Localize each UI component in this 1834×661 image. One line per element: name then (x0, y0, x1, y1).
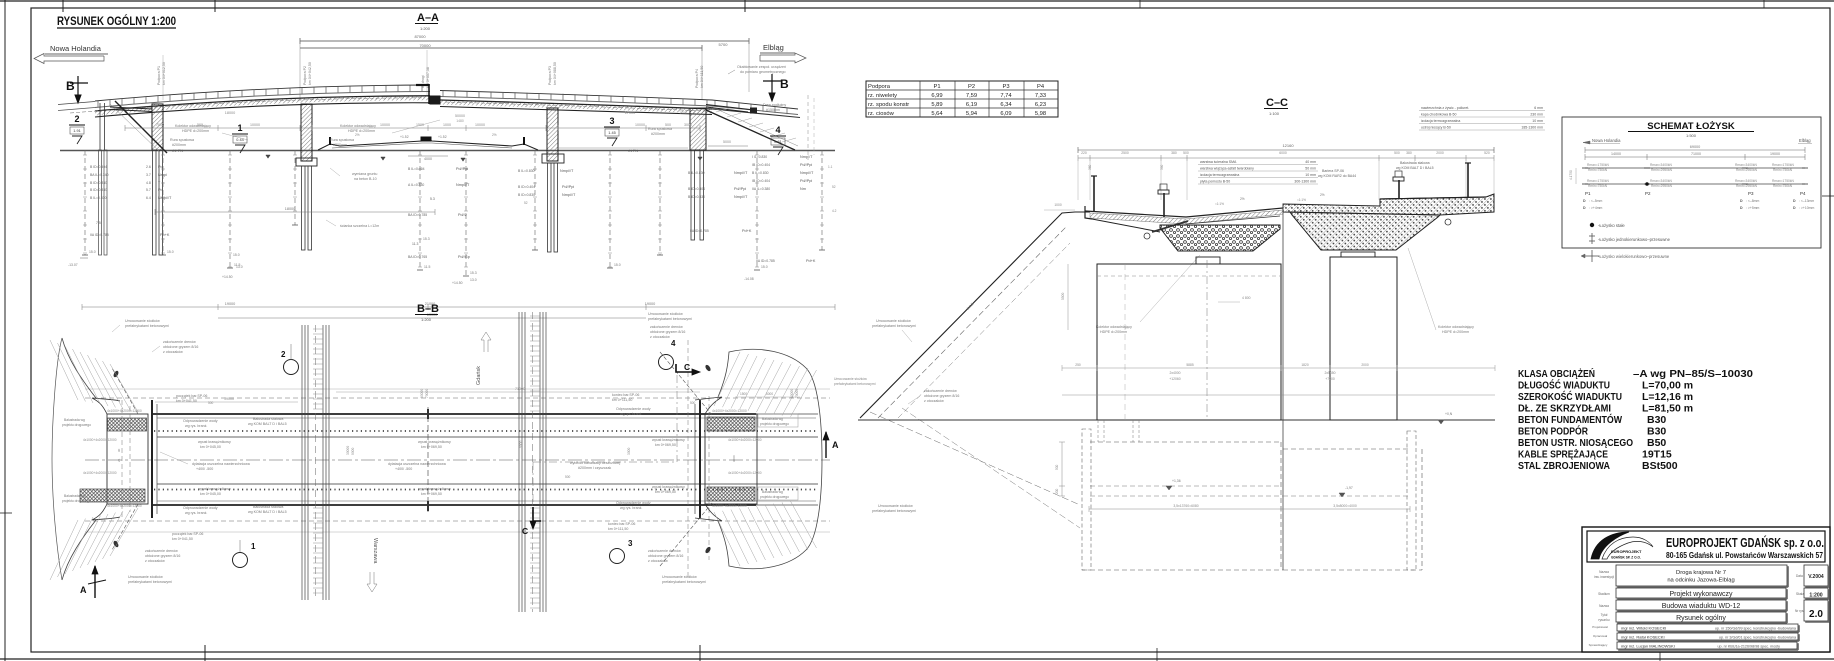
svg-text:mgr inż. Witold KOSECKI: mgr inż. Witold KOSECKI (1621, 626, 1666, 631)
svg-text:B30: B30 (1647, 426, 1666, 438)
svg-text:BA ID=0.765: BA ID=0.765 (408, 255, 427, 259)
svg-text:4.1750: 4.1750 (1569, 170, 1573, 180)
svg-text:80-165 Gdańsk ul. Powstańców W: 80-165 Gdańsk ul. Powstańców Warszawskic… (1666, 550, 1823, 560)
svg-text:500: 500 (1055, 464, 1059, 470)
svg-text:18000: 18000 (225, 111, 236, 115)
svg-text:Odprowadzenie wody: Odprowadzenie wody (616, 407, 651, 411)
svg-text:L=70,00 m: L=70,00 m (1642, 380, 1693, 392)
svg-text:km 04+088,50: km 04+088,50 (553, 62, 557, 85)
svg-text:Podpora: Podpora (868, 84, 891, 90)
svg-text:Rura spustowa: Rura spustowa (648, 127, 672, 131)
svg-text:2%: 2% (1320, 193, 1325, 197)
svg-text:wpust krawężnikowy: wpust krawężnikowy (198, 487, 231, 491)
svg-text:prefabrykatami betonowymi: prefabrykatami betonowymi (648, 317, 692, 321)
svg-text:Podpora P4: Podpora P4 (695, 69, 699, 88)
svg-text:250: 250 (1075, 363, 1081, 367)
svg-text:wg KOM RAR2 do BA44: wg KOM RAR2 do BA44 (1318, 174, 1356, 178)
svg-text:B30: B30 (1647, 414, 1666, 426)
svg-text:Pó+K: Pó+K (160, 233, 170, 237)
svg-text:Nmpi//T: Nmpi//T (158, 196, 172, 200)
svg-text:Pd+K: Pd+K (742, 229, 752, 233)
svg-text:Pd//Ppi: Pd//Ppi (800, 179, 812, 183)
svg-text:3.7: 3.7 (146, 173, 151, 177)
svg-text:#200mm: #200mm (651, 132, 665, 136)
svg-text:Droga krajowa Nr 7: Droga krajowa Nr 7 (1676, 570, 1726, 576)
svg-text:1500: 1500 (416, 123, 424, 127)
svg-text:Kolektor odwadniający: Kolektor odwadniający (1096, 325, 1132, 329)
svg-text:up. nr 3/Gd/01 spec. konst: up. nr 3/Gd/01 spec. konstrukcyjno -budo… (1719, 636, 1797, 640)
svg-text:Rmin=2950kN: Rmin=2950kN (1651, 184, 1673, 188)
svg-text:B ID=0.830: B ID=0.830 (688, 195, 705, 199)
svg-text:2x4000: 2x4000 (1169, 371, 1180, 375)
svg-text:km 0+045,00: km 0+045,00 (200, 445, 221, 449)
svg-text:Budowa wiaduktu WD-12: Budowa wiaduktu WD-12 (1662, 603, 1741, 610)
svg-text:km 0+069,50: km 0+069,50 (655, 443, 676, 447)
svg-text:500: 500 (1394, 151, 1400, 155)
svg-text:185-1300 mm: 185-1300 mm (1521, 126, 1543, 130)
svg-text:Rmin=750kN: Rmin=750kN (1773, 168, 1793, 172)
svg-text:10000: 10000 (250, 123, 260, 127)
svg-text:70000: 70000 (425, 389, 429, 398)
svg-text:BETON FUNDAMENTÓW: BETON FUNDAMENTÓW (1518, 413, 1622, 426)
svg-text:prefabrykatami betonowymi: prefabrykatami betonowymi (872, 324, 916, 328)
svg-text:5500: 5500 (1061, 292, 1065, 300)
svg-text:Rysunek ogólny: Rysunek ogólny (1676, 615, 1726, 622)
svg-text:D: D (1793, 206, 1796, 210)
svg-text:D: D (1740, 206, 1743, 210)
svg-text:Nowa Holandia: Nowa Holandia (50, 44, 102, 53)
svg-text:EUROPROJEKT: EUROPROJEKT (1611, 549, 1642, 554)
svg-text:Pd: Pd (158, 165, 163, 169)
svg-text:z otoczaków: z otoczaków (163, 350, 183, 354)
svg-text:-14.08: -14.08 (744, 277, 754, 281)
svg-text:4 800: 4 800 (1242, 296, 1251, 300)
svg-text:7,33: 7,33 (1035, 93, 1046, 99)
svg-text:wg KOM BALT D i BAL5: wg KOM BALT D i BAL5 (248, 422, 287, 426)
svg-text:+400/ -500: +400/ -500 (395, 467, 412, 471)
svg-text:koniec bar.SP-06: koniec bar.SP-06 (608, 522, 635, 526)
svg-text:obłożone gryzem 8/16: obłożone gryzem 8/16 (648, 554, 683, 558)
svg-text:71000: 71000 (515, 387, 525, 391)
svg-text:70000: 70000 (419, 43, 431, 48)
svg-text:5,89: 5,89 (931, 102, 942, 108)
svg-text:4x1000+4x2000=12000: 4x1000+4x2000=12000 (712, 409, 747, 413)
svg-text:2x5650: 2x5650 (1324, 371, 1335, 375)
svg-text:Nazwa: Nazwa (1599, 604, 1609, 608)
svg-text:25: 25 (117, 458, 121, 462)
svg-text:z otoczaków: z otoczaków (145, 559, 165, 563)
svg-text:1:500: 1:500 (1686, 133, 1697, 138)
svg-text:km 0+041,50: km 0+041,50 (172, 537, 193, 541)
svg-text:km 04+111,50: km 04+111,50 (700, 66, 704, 88)
svg-text:1000: 1000 (1054, 203, 1062, 207)
svg-text:15.0: 15.0 (761, 265, 768, 269)
svg-text:D: D (1740, 199, 1743, 203)
svg-text:Skala: Skala (1796, 592, 1804, 596)
svg-text:KLASA OBCIĄŻEŃ: KLASA OBCIĄŻEŃ (1518, 367, 1595, 380)
svg-text:4.8: 4.8 (146, 181, 151, 185)
svg-text:6,19: 6,19 (966, 102, 977, 108)
svg-text:Kolektor odwadniający: Kolektor odwadniający (175, 124, 211, 128)
svg-text:BSt500: BSt500 (1642, 460, 1678, 472)
svg-text:Pd//2: Pd//2 (458, 213, 467, 217)
svg-text:do pomiaru geometrycznego: do pomiaru geometrycznego (740, 70, 786, 74)
svg-text:4x1000+4x2000=12000: 4x1000+4x2000=12000 (83, 438, 117, 442)
svg-text:B IL=0.830: B IL=0.830 (752, 171, 769, 175)
svg-text:Odprowadzenie wody: Odprowadzenie wody (616, 501, 651, 505)
svg-text:obłożone gryzem 8/16: obłożone gryzem 8/16 (163, 345, 198, 349)
svg-text:Nr rys.: Nr rys. (1795, 609, 1804, 613)
svg-text:I IL=0.830: I IL=0.830 (752, 155, 767, 159)
svg-text:Rmin=2950kN: Rmin=2950kN (1736, 168, 1758, 172)
svg-text:: >+4mm: : >+4mm (1589, 206, 1603, 210)
svg-text:V.2004: V.2004 (1808, 574, 1824, 580)
svg-text:ścianka szczelna L=12m: ścianka szczelna L=12m (340, 224, 379, 228)
svg-text:obłożone gryzem 8/16: obłożone gryzem 8/16 (924, 394, 959, 398)
svg-text:B50: B50 (1647, 437, 1666, 449)
svg-text:P1: P1 (1585, 191, 1591, 196)
svg-text:projektu drogowego: projektu drogowego (62, 499, 91, 503)
svg-text:IB ID=0.404: IB ID=0.404 (752, 163, 770, 167)
svg-text:15.0: 15.0 (233, 253, 240, 257)
svg-text:230 mm: 230 mm (1530, 113, 1543, 117)
svg-text:-13.07: -13.07 (68, 263, 78, 267)
svg-text:Odprowadzenie wody: Odprowadzenie wody (183, 419, 218, 423)
svg-text:–A wg PN–85/S–10030: –A wg PN–85/S–10030 (1633, 368, 1753, 380)
svg-text:B ID=0.830: B ID=0.830 (90, 181, 107, 185)
svg-text:A IL=0.830: A IL=0.830 (408, 183, 424, 187)
svg-text:wpust krawężnikowy: wpust krawężnikowy (198, 440, 231, 444)
svg-text:Nowa Holandia: Nowa Holandia (1592, 138, 1621, 143)
svg-text:Odprowadzenie wody: Odprowadzenie wody (183, 506, 218, 510)
svg-text:#200mm: #200mm (172, 143, 186, 147)
svg-text:2.6: 2.6 (146, 165, 151, 169)
svg-text:z otoczaków: z otoczaków (924, 399, 944, 403)
svg-text:Rmin=750kN: Rmin=750kN (1773, 184, 1793, 188)
svg-text:Nmpi: Nmpi (158, 173, 167, 177)
svg-text:69000: 69000 (1690, 145, 1701, 149)
svg-text:1480: 1480 (456, 119, 464, 123)
svg-text:wpust krawężnikowy: wpust krawężnikowy (418, 440, 451, 444)
svg-text:DŁ. ZE SKRZYDŁAMI: DŁ. ZE SKRZYDŁAMI (1518, 403, 1611, 415)
svg-text:6000: 6000 (766, 392, 773, 396)
svg-text:B IL=0.404: B IL=0.404 (408, 167, 425, 171)
svg-text:B IL=0.830: B IL=0.830 (688, 171, 705, 175)
svg-text:71000: 71000 (1691, 152, 1701, 156)
svg-text:15.3: 15.3 (423, 237, 430, 241)
svg-text:-1,97: -1,97 (1345, 486, 1353, 490)
svg-text:4x1000+4x2000=12000: 4x1000+4x2000=12000 (728, 438, 762, 442)
svg-text:P2: P2 (1645, 191, 1651, 196)
svg-text:zakończenie drenów: zakończenie drenów (145, 549, 178, 553)
svg-text:Rmax=3400kN: Rmax=3400kN (1650, 179, 1673, 183)
svg-text:prefabrykatami betonowymi: prefabrykatami betonowymi (872, 509, 916, 513)
svg-text:3,5x8000=4000: 3,5x8000=4000 (1333, 504, 1357, 508)
svg-text:12160: 12160 (1282, 143, 1294, 148)
svg-text:7000: 7000 (156, 123, 164, 127)
svg-text:Elbląg: Elbląg (1799, 138, 1811, 143)
svg-text:Rmin=750kN: Rmin=750kN (1588, 168, 1608, 172)
svg-text:B ID=0.404: B ID=0.404 (688, 187, 705, 191)
svg-text:1: 1 (237, 123, 242, 133)
svg-text:projektu drogowego: projektu drogowego (62, 423, 91, 427)
svg-text:70000: 70000 (795, 389, 799, 398)
svg-text:inw. inwestycji: inw. inwestycji (1594, 575, 1614, 579)
svg-text:50000: 50000 (455, 114, 465, 118)
svg-text:11.5: 11.5 (424, 265, 430, 269)
svg-text:15.3: 15.3 (470, 271, 477, 275)
svg-text:200: 200 (1055, 488, 1059, 494)
svg-text:z otoczaków: z otoczaków (648, 559, 668, 563)
svg-text:#150mm: #150mm (766, 108, 780, 112)
svg-text:km 0+045,00: km 0+045,00 (200, 492, 221, 496)
svg-text:2.0: 2.0 (1809, 609, 1823, 620)
svg-text:220: 220 (1081, 151, 1087, 155)
svg-text:: <–8mm: : <–8mm (1746, 199, 1759, 203)
svg-text:up. nr 150/Gd/99 spec. konstr: up. nr 150/Gd/99 spec. konstrukcyjno -bu… (1715, 627, 1797, 631)
svg-text:Nmp//T: Nmp//T (800, 155, 813, 159)
svg-text:prefabrykatami betonowymi: prefabrykatami betonowymi (128, 580, 172, 584)
svg-text:500: 500 (1183, 151, 1189, 155)
svg-text:1500: 1500 (740, 392, 747, 396)
svg-text:Umocowanie stożków: Umocowanie stożków (876, 319, 911, 323)
svg-text:up. nr KBU1a-2126/98/98 spec.: up. nr KBU1a-2126/98/98 spec. mosty (1717, 645, 1780, 649)
svg-text:obłożone gryzem 8/16: obłożone gryzem 8/16 (650, 330, 685, 334)
svg-text:4.2: 4.2 (832, 209, 837, 213)
svg-text:#200mm: #200mm (333, 143, 347, 147)
svg-text:HDPE d=200mm: HDPE d=200mm (1442, 330, 1469, 334)
svg-text:mgr inż. Rafał KOSECKI: mgr inż. Rafał KOSECKI (1621, 635, 1665, 640)
svg-text:3000: 3000 (627, 447, 631, 455)
svg-text:ustrój niosący B-50: ustrój niosący B-50 (1421, 126, 1451, 130)
svg-text:BA ID=0.785: BA ID=0.785 (408, 213, 427, 217)
svg-text:rz. ciosów: rz. ciosów (868, 111, 895, 117)
svg-text:Rmax=3400kN: Rmax=3400kN (1735, 163, 1758, 167)
svg-text:15.0: 15.0 (89, 250, 96, 254)
svg-text:10000: 10000 (635, 123, 645, 127)
svg-text:na odcinku Jazowa-Elbląg: na odcinku Jazowa-Elbląg (1667, 578, 1734, 584)
svg-text:km 0+111,50: km 0+111,50 (608, 527, 628, 531)
svg-text:Pd//Ppi: Pd//Ppi (562, 185, 574, 189)
svg-text:warstwa wiążąca-asfalt twardol: warstwa wiążąca-asfalt twardolany (1200, 167, 1254, 171)
svg-text:rN+PN: rN+PN (172, 149, 183, 153)
svg-text:km 0+041,50: km 0+041,50 (176, 399, 197, 403)
svg-text:Umocowanie stożków: Umocowanie stożków (128, 575, 163, 579)
svg-text:3000: 3000 (684, 123, 692, 127)
svg-text:Sprawdzający: Sprawdzający (1589, 643, 1608, 647)
svg-text:IB ID=0.404: IB ID=0.404 (752, 179, 770, 183)
svg-text:15.0: 15.0 (614, 263, 621, 267)
svg-text:Balustrada wg: Balustrada wg (64, 418, 85, 422)
svg-text:projektu drogowego: projektu drogowego (760, 495, 789, 499)
svg-text:km 04+012,50: km 04+012,50 (162, 62, 166, 85)
svg-text:P4: P4 (1800, 191, 1806, 196)
svg-text:2: 2 (74, 114, 79, 124)
svg-text:15.0: 15.0 (167, 250, 174, 254)
svg-text:P3: P3 (1002, 84, 1009, 90)
svg-text:10000: 10000 (380, 123, 390, 127)
svg-text:6,23: 6,23 (1035, 102, 1046, 108)
svg-text:wpust krawężnikowy: wpust krawężnikowy (418, 487, 451, 491)
svg-text:nawierzchnia z żywic - poliure: nawierzchnia z żywic - poliuret. (1421, 106, 1469, 110)
svg-text:Nmpi//T: Nmpi//T (800, 171, 814, 175)
svg-text:5885: 5885 (1186, 363, 1194, 367)
svg-text:dylatacja uszczelna nawierzchn: dylatacja uszczelna nawierzchniowa (192, 462, 250, 466)
svg-text:D: D (1793, 199, 1796, 203)
svg-text:prefabrykatami betonowymi: prefabrykatami betonowymi (834, 382, 876, 386)
svg-text:KABLE SPRĘŻAJĄCE: KABLE SPRĘŻAJĄCE (1518, 448, 1608, 461)
svg-text:wg rys. branż.: wg rys. branż. (620, 412, 642, 416)
svg-text:EUROPROJEKT GDAŃSK sp. z o.o.: EUROPROJEKT GDAŃSK sp. z o.o. (1666, 535, 1824, 550)
svg-text:B ID=0.830: B ID=0.830 (90, 188, 107, 192)
svg-text:Data: Data (1796, 574, 1803, 578)
svg-text:52: 52 (524, 201, 528, 205)
svg-text:2000: 2000 (1361, 363, 1369, 367)
svg-text:1000: 1000 (443, 123, 451, 127)
svg-text:5.3: 5.3 (430, 197, 435, 201)
svg-text:Rmax=3400kN: Rmax=3400kN (1735, 179, 1758, 183)
svg-text:-Łożysko jednokierunkowo–prze: -Łożysko jednokierunkowo–przesuwne (1598, 237, 1671, 242)
svg-text:warstwa ścieralna SMA: warstwa ścieralna SMA (1200, 160, 1237, 164)
svg-text:6,99: 6,99 (931, 93, 942, 99)
svg-text:GDAŃSK SP. Z O.O.: GDAŃSK SP. Z O.O. (1611, 555, 1641, 560)
svg-text:: <–13mm: : <–13mm (1799, 199, 1814, 203)
svg-text:B ID=0.404: B ID=0.404 (90, 165, 107, 169)
svg-text:1820: 1820 (1301, 363, 1309, 367)
svg-text:zakończenie drenów: zakończenie drenów (650, 325, 683, 329)
svg-text:P4: P4 (1037, 84, 1045, 90)
svg-text:-Łożysko stałe: -Łożysko stałe (1598, 223, 1625, 228)
svg-text:6,34: 6,34 (1000, 102, 1012, 108)
svg-text:≈1:1%: ≈1:1% (1215, 202, 1224, 206)
svg-text:Umocowanie stożków: Umocowanie stożków (648, 312, 683, 316)
svg-text:projektu drogowego: projektu drogowego (760, 422, 789, 426)
svg-text:360: 360 (1088, 164, 1092, 170)
svg-text:Pd//Gp: Pd//Gp (458, 255, 470, 259)
svg-text:+0,N: +0,N (1445, 412, 1453, 416)
svg-text:kapa chodnikowa B-50: kapa chodnikowa B-50 (1421, 113, 1456, 117)
svg-text:300-1300 mm: 300-1300 mm (1294, 180, 1316, 184)
svg-text:≈1:1%: ≈1:1% (1297, 198, 1306, 202)
svg-text:prefabrykatami betonowymi: prefabrykatami betonowymi (125, 324, 169, 328)
svg-text:Rura spustowa: Rura spustowa (170, 138, 194, 142)
svg-text:wymiana gruntu: wymiana gruntu (352, 172, 377, 176)
svg-text:zakończenie drenów: zakończenie drenów (924, 389, 957, 393)
svg-text:Pd//Ppi: Pd//Ppi (734, 187, 746, 191)
svg-text:5,98: 5,98 (1035, 111, 1046, 117)
svg-text:B–B: B–B (417, 303, 439, 315)
svg-text:izolacja termozgrzewalna: izolacja termozgrzewalna (1200, 173, 1239, 177)
svg-text:+14.50: +14.50 (452, 281, 463, 285)
svg-text:Rura spustowa: Rura spustowa (330, 138, 354, 142)
svg-text:SZEROKOŚĆ WIADUKTU: SZEROKOŚĆ WIADUKTU (1518, 390, 1622, 403)
svg-text:2%: 2% (1240, 197, 1245, 201)
svg-text:500: 500 (565, 475, 571, 479)
svg-text:B IL=0.830: B IL=0.830 (518, 169, 535, 173)
svg-text:HDPE d=200mm: HDPE d=200mm (1100, 330, 1127, 334)
svg-text:Podpora P3: Podpora P3 (548, 66, 552, 85)
svg-text:7.5: 7.5 (96, 221, 101, 225)
svg-text:Nm: Nm (800, 187, 806, 191)
svg-text:Pd//Ppi: Pd//Ppi (456, 167, 468, 171)
svg-text:wg rys. branż.: wg rys. branż. (620, 506, 642, 510)
svg-text:Pd+K: Pd+K (806, 259, 816, 263)
svg-text:2: 2 (281, 350, 286, 359)
svg-text:30000: 30000 (346, 446, 350, 455)
svg-text:4x1000+4x2000=12000: 4x1000+4x2000=12000 (107, 409, 142, 413)
svg-text:7,74: 7,74 (1000, 93, 1012, 99)
svg-text:IIA ID=0.785: IIA ID=0.785 (756, 259, 775, 263)
svg-text:5,64: 5,64 (931, 111, 943, 117)
svg-text:19T15: 19T15 (1642, 449, 1672, 461)
svg-text:Nmpi//T: Nmpi//T (560, 169, 574, 173)
svg-text:-Łożysko wielokierunkowo–prze: -Łożysko wielokierunkowo–przesuwne (1598, 254, 1670, 259)
svg-text:B ID=0.404: B ID=0.404 (518, 185, 535, 189)
svg-text:Dren podłużny: Dren podłużny (763, 103, 786, 107)
svg-text:19000: 19000 (645, 302, 656, 306)
svg-text:1:200: 1:200 (421, 317, 432, 322)
svg-text:prefabrykatami betonowymi: prefabrykatami betonowymi (662, 580, 706, 584)
svg-text:9000: 9000 (519, 440, 523, 448)
svg-text:BA IL=0.340: BA IL=0.340 (90, 173, 109, 177)
svg-text:380: 380 (1171, 151, 1177, 155)
svg-text:D: D (1583, 199, 1586, 203)
svg-text:6 mm: 6 mm (1534, 106, 1543, 110)
svg-text:Umocowanie stożków: Umocowanie stożków (878, 504, 913, 508)
svg-text:4000: 4000 (424, 157, 432, 161)
svg-text:D: D (1583, 206, 1586, 210)
svg-text:Nmpi//T: Nmpi//T (734, 171, 748, 175)
svg-text:: <–5mm: : <–5mm (1589, 199, 1602, 203)
svg-text:C–C: C–C (1266, 97, 1288, 109)
svg-text:1.91: 1.91 (73, 129, 80, 133)
svg-text:wyłot/do kanalizacji deszczowe: wyłot/do kanalizacji deszczowej (570, 461, 621, 465)
svg-text:Balustrada wg: Balustrada wg (64, 494, 85, 498)
svg-text:z otoczaków: z otoczaków (650, 335, 670, 339)
svg-text:500: 500 (208, 401, 214, 405)
svg-text:SCHEMAT ŁOŻYSK: SCHEMAT ŁOŻYSK (1647, 121, 1735, 132)
svg-text:3: 3 (628, 539, 633, 548)
svg-text:18000: 18000 (285, 207, 296, 211)
svg-text:14000: 14000 (1611, 152, 1621, 156)
svg-text:wg KOM BALT D i BAL5: wg KOM BALT D i BAL5 (1396, 166, 1434, 170)
svg-text:izolacja termozgrzewalna: izolacja termozgrzewalna (1421, 119, 1460, 123)
svg-text:2500: 2500 (1121, 151, 1129, 155)
svg-text:B IL=0.830: B IL=0.830 (90, 196, 107, 200)
svg-text:rN PN: rN PN (628, 149, 638, 153)
svg-text:10 mm: 10 mm (1305, 173, 1316, 177)
svg-text:IIA ID=0.785: IIA ID=0.785 (690, 229, 709, 233)
svg-text:Rmin=2950kN: Rmin=2950kN (1736, 184, 1758, 188)
svg-text:87000: 87000 (414, 34, 426, 39)
svg-text:13.0: 13.0 (470, 278, 477, 282)
svg-text:19000: 19000 (224, 397, 234, 401)
svg-text:11.3: 11.3 (412, 242, 418, 246)
svg-text:Balustrada stalowa: Balustrada stalowa (253, 417, 283, 421)
svg-text:BETON USTR. NIOSĄCEGO: BETON USTR. NIOSĄCEGO (1518, 437, 1633, 449)
svg-text:L=12,16 m: L=12,16 m (1642, 391, 1693, 403)
svg-text:Balustrada stalowa: Balustrada stalowa (253, 505, 283, 509)
svg-text:BETON PODPÓR: BETON PODPÓR (1518, 425, 1588, 438)
svg-text:Nmpi//T: Nmpi//T (562, 193, 576, 197)
svg-text:1:200: 1:200 (420, 26, 431, 31)
svg-text:A: A (832, 440, 839, 450)
svg-text:#200mm i czyszczak: #200mm i czyszczak (578, 466, 611, 470)
svg-text:1.45: 1.45 (608, 131, 615, 135)
svg-text:3: 3 (609, 116, 614, 126)
svg-text:4x1000+4x2000=12000: 4x1000+4x2000=12000 (83, 471, 117, 475)
svg-text:Rmax=3400kN: Rmax=3400kN (1650, 163, 1673, 167)
